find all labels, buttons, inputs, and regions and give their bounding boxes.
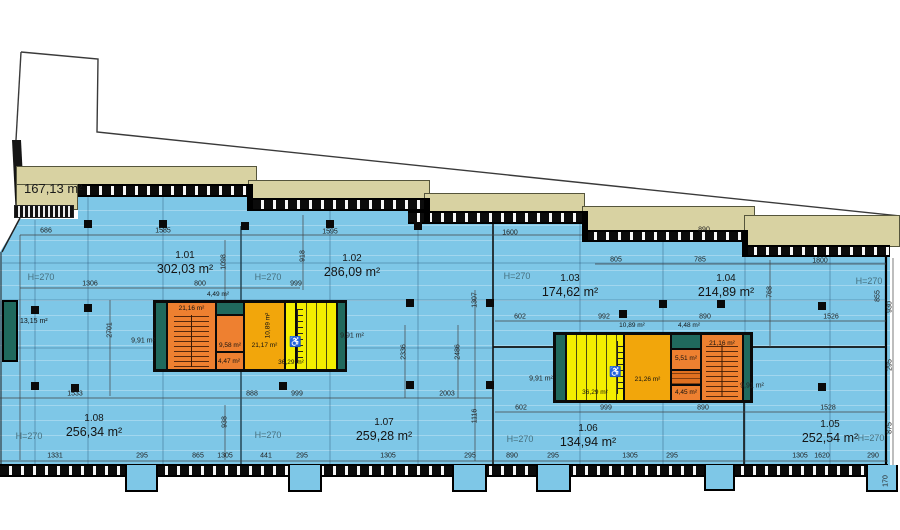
stair-area-label: 21,16 m² [168, 305, 215, 312]
dimension-label: 1305 [380, 453, 396, 460]
dimension-label: 890 [506, 453, 518, 460]
clear-height-label: H=270 [507, 434, 534, 444]
dimension-label: 686 [40, 228, 52, 235]
dimension-label: 170 [883, 475, 890, 487]
dimension-label: 999 [600, 405, 612, 412]
dimension-label: 930 [887, 301, 894, 313]
dimension-label: 1533 [67, 391, 83, 398]
unit-label: 1.01 302,03 m² [157, 250, 213, 276]
column [486, 381, 494, 389]
unit-number: 1.01 [157, 250, 213, 262]
dimension-label: 1595 [322, 229, 338, 236]
column [326, 220, 334, 228]
unit-label: 1.07 259,28 m² [356, 417, 412, 443]
dimension-label: 9,91 m² [529, 376, 553, 383]
clear-height-label: H=270 [858, 433, 885, 443]
dimension-label: 1116 [472, 409, 479, 424]
unit-number: 1.03 [542, 273, 598, 285]
dimension-label: 1528 [820, 405, 836, 412]
unit-area: 302,03 m² [157, 262, 213, 276]
dimension-label: 918 [300, 250, 307, 262]
dimension-label: 295 [547, 453, 559, 460]
facade-step-connector [247, 184, 253, 211]
shaft-strip [744, 335, 750, 400]
wc-area-label: 36,29 m² [575, 389, 615, 396]
dimension-label: 1526 [823, 314, 839, 321]
washbasins [297, 309, 303, 363]
terrace-step-3 [424, 193, 585, 213]
column [717, 300, 725, 308]
dimension-label: 890 [699, 314, 711, 321]
unit-label: 1.03 174,62 m² [542, 273, 598, 299]
clear-height-label: H=270 [255, 430, 282, 440]
column [84, 220, 92, 228]
plan-linework [0, 0, 900, 530]
unit-number: 1.08 [66, 413, 122, 425]
stair-treads [174, 315, 209, 367]
dimension-label: 295 [296, 453, 308, 460]
entrance-bay [452, 465, 487, 492]
core-corridor [625, 335, 670, 400]
dimension-label: 295 [666, 453, 678, 460]
column [619, 310, 627, 318]
core-right: ♿ 36,29 m² 21,26 m² 5,51 m² 4,45 m² 21,1… [553, 332, 753, 403]
corridor-area-label: 21,26 m² [625, 376, 670, 383]
clear-height-label: H=270 [856, 276, 883, 286]
dimension-label: 875 [887, 422, 894, 434]
north-facade-4 [585, 230, 743, 242]
dimension-label: 1305 [622, 453, 638, 460]
dimension-label: 2336 [401, 344, 408, 360]
unit-number: 1.06 [560, 423, 616, 435]
shaft-small [217, 303, 243, 314]
dimension-label: 785 [694, 257, 706, 264]
dimension-label: 1331 [47, 453, 63, 460]
clear-height-label: H=270 [16, 431, 43, 441]
shaft-area-label: 13,15 m² [20, 318, 48, 325]
dimension-label: 602 [514, 314, 526, 321]
dimension-label: 602 [515, 405, 527, 412]
column [84, 304, 92, 312]
entrance-bay [536, 465, 571, 492]
entrance-bay [704, 465, 735, 491]
dimension-label: 2701 [107, 322, 114, 338]
terrace-step-2 [248, 180, 430, 200]
elevator-area-label: 9,58 m² [217, 342, 243, 349]
facade-step-connector [424, 198, 430, 224]
shaft-strip [156, 303, 166, 369]
dimension-label: 1305 [217, 453, 233, 460]
dimension-label: 2486 [455, 344, 462, 360]
stairwell [168, 303, 215, 369]
dimension-label: 9,91 m² [740, 383, 764, 390]
dimension-label: 890 [697, 405, 709, 412]
unit-area: 214,89 m² [698, 285, 754, 299]
facade-step-connector [742, 230, 748, 257]
dimension-label: 2003 [439, 391, 455, 398]
unit-area: 134,94 m² [560, 435, 616, 449]
dimension-label: 999 [290, 281, 302, 288]
service-area-label: 4,47 m² [213, 358, 245, 365]
dimension-label: 938 [222, 416, 229, 428]
column [406, 381, 414, 389]
dimension-label: 295 [136, 453, 148, 460]
dimension-label: 1098 [221, 254, 228, 270]
clear-height-label: H=270 [255, 272, 282, 282]
unit-area: 256,34 m² [66, 425, 122, 439]
core-right-top-label-1: 10,89 m² [612, 322, 652, 329]
dimension-label: 992 [598, 314, 610, 321]
column [31, 306, 39, 314]
lobby-area-label: 10,89 m² [265, 311, 272, 341]
room-a-label: 5,51 m² [670, 355, 702, 362]
dimension-label: 1600 [502, 230, 518, 237]
facade-step-connector [582, 211, 588, 242]
unit-label: 1.05 252,54 m² [802, 419, 858, 445]
dimension-label: 855 [875, 290, 882, 302]
shaft-strip [556, 335, 565, 400]
stair-treads [706, 345, 738, 397]
unit-area: 174,62 m² [542, 285, 598, 299]
dimension-label: 1306 [82, 281, 98, 288]
wc-area-label: 36,29 m² [271, 359, 311, 366]
shaft-room [2, 300, 18, 362]
unit-label: 1.04 214,89 m² [698, 273, 754, 299]
room-b-label: 4,45 m² [670, 389, 702, 396]
dimension-label: 800 [194, 281, 206, 288]
column [659, 300, 667, 308]
column [818, 302, 826, 310]
unit-number: 1.02 [324, 253, 380, 265]
dimension-label: 295 [464, 453, 476, 460]
unit-number: 1.04 [698, 273, 754, 285]
service-stair [672, 371, 700, 384]
dimension-label: 441 [260, 453, 272, 460]
dimension-label: 1800 [812, 258, 828, 265]
accessible-wc-icon: ♿ [609, 368, 621, 378]
unit-label: 1.06 134,94 m² [560, 423, 616, 449]
column [279, 382, 287, 390]
unit-area: 259,28 m² [356, 429, 412, 443]
accessible-wc-icon: ♿ [289, 338, 301, 348]
dimension-label: 1585 [155, 228, 171, 235]
column [414, 222, 422, 230]
unit-number: 1.07 [356, 417, 412, 429]
terrace-step-5 [744, 215, 900, 247]
dimension-label: 9,91 m² [340, 333, 364, 340]
clear-height-label: H=270 [28, 272, 55, 282]
unit-label: 1.08 256,34 m² [66, 413, 122, 439]
dimension-label: 768 [767, 286, 774, 298]
dimension-label: 290 [867, 453, 879, 460]
corridor-area-label: 21,17 m² [245, 342, 284, 349]
dimension-label: 999 [291, 391, 303, 398]
entrance-bay [125, 465, 158, 492]
dimension-label: 1307 [472, 292, 479, 308]
dimension-label: 888 [246, 391, 258, 398]
dimension-label: 890 [698, 227, 710, 234]
terrace-area-label: 167,13 m² [24, 181, 83, 196]
floor-plan-canvas: ♿ 21,16 m² 9,58 m² 4,47 m² 21,17 m² 36,2… [0, 0, 900, 530]
shaft-small [672, 335, 700, 348]
clear-height-label: H=270 [504, 271, 531, 281]
north-facade-3 [408, 211, 584, 224]
dimension-label: 9,91 m² [131, 338, 155, 345]
column [818, 383, 826, 391]
column [31, 382, 39, 390]
stair-area-label: 21,16 m² [702, 340, 742, 347]
dimension-label: 1620 [814, 453, 830, 460]
unit-label: 1.02 286,09 m² [324, 253, 380, 279]
dimension-label: 865 [192, 453, 204, 460]
dimension-label: 295 [887, 359, 894, 371]
dimension-label: 1305 [792, 453, 808, 460]
dimension-label: 805 [610, 257, 622, 264]
north-facade-1 [78, 184, 251, 197]
north-facade-2 [252, 198, 426, 211]
column [406, 299, 414, 307]
terrace-railing-hatch [14, 205, 74, 218]
entrance-bay [288, 465, 322, 492]
core-right-top-label-2: 4,48 m² [669, 322, 709, 329]
core-left-top-label: 4,49 m² [198, 291, 238, 298]
unit-area: 286,09 m² [324, 265, 380, 279]
unit-area: 252,54 m² [802, 431, 858, 445]
terrace-step-4 [582, 206, 755, 232]
column [241, 222, 249, 230]
core-left: ♿ 21,16 m² 9,58 m² 4,47 m² 21,17 m² 36,2… [153, 300, 347, 372]
column [486, 299, 494, 307]
north-facade-5 [745, 245, 890, 257]
unit-number: 1.05 [802, 419, 858, 431]
